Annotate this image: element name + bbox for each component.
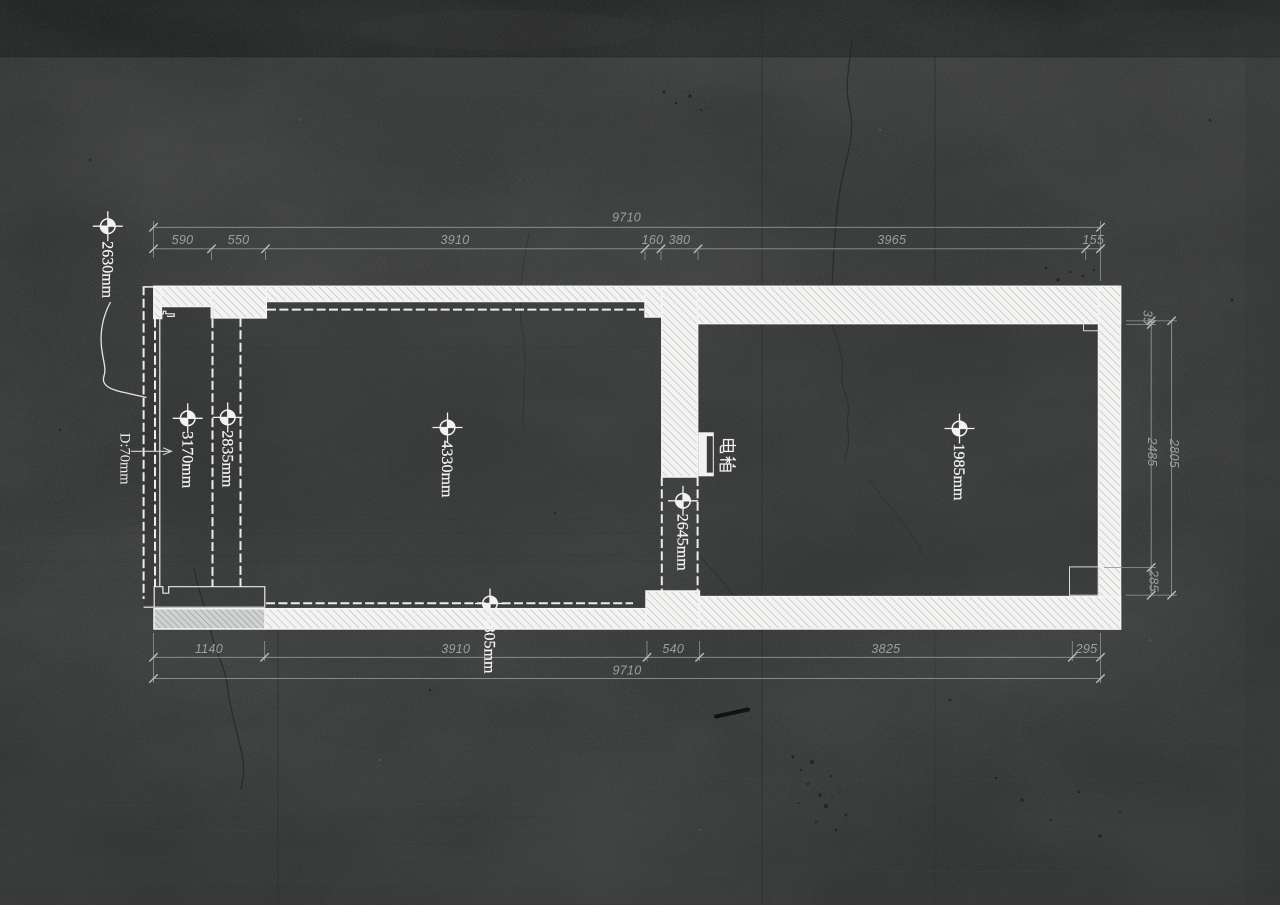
svg-text:295: 295 <box>1075 642 1098 656</box>
svg-text:9710: 9710 <box>612 211 641 225</box>
svg-text:1140: 1140 <box>195 642 223 656</box>
svg-text:550: 550 <box>228 233 250 247</box>
svg-text:2805: 2805 <box>1167 438 1181 468</box>
svg-text:285: 285 <box>1147 569 1161 592</box>
svg-text:155: 155 <box>1082 233 1104 247</box>
svg-text:3170mm: 3170mm <box>178 431 195 488</box>
svg-text:2630mm: 2630mm <box>99 241 116 298</box>
svg-text:4805mm: 4805mm <box>481 617 498 674</box>
svg-text:35: 35 <box>1141 310 1155 325</box>
svg-text:590: 590 <box>172 233 194 247</box>
svg-text:2485: 2485 <box>1145 437 1159 467</box>
svg-text:3825: 3825 <box>871 642 900 656</box>
svg-text:9710: 9710 <box>612 663 641 677</box>
svg-text:2835mm: 2835mm <box>218 430 235 487</box>
svg-text:D:70mm: D:70mm <box>117 433 133 485</box>
svg-text:2645mm: 2645mm <box>674 514 691 571</box>
svg-text:160: 160 <box>642 233 664 247</box>
svg-text:3910: 3910 <box>440 233 469 247</box>
svg-text:3965: 3965 <box>877 233 906 247</box>
svg-text:4330mm: 4330mm <box>438 441 455 498</box>
svg-text:540: 540 <box>662 642 684 656</box>
svg-text:3910: 3910 <box>441 642 470 656</box>
svg-text:380: 380 <box>669 233 691 247</box>
svg-text:1985mm: 1985mm <box>950 444 967 501</box>
